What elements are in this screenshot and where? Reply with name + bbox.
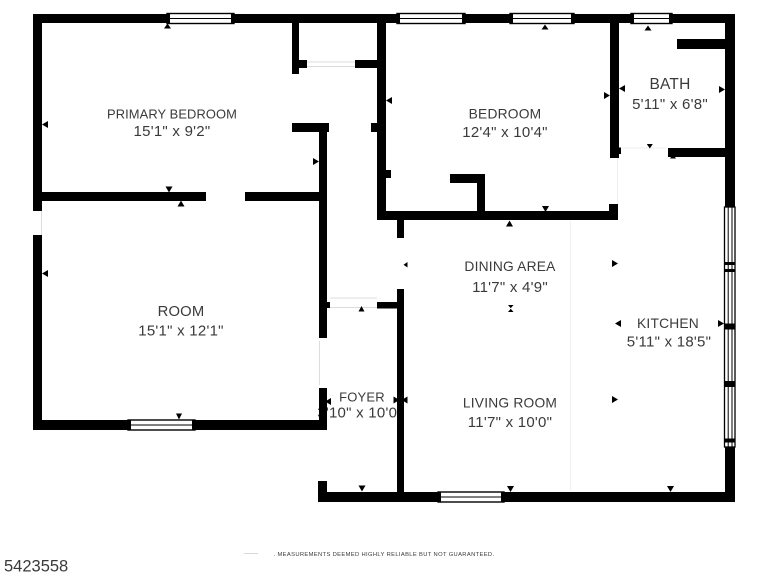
svg-text:ROOM: ROOM	[158, 304, 205, 320]
svg-text:FOYER: FOYER	[339, 390, 385, 405]
svg-text:BATH: BATH	[650, 76, 691, 93]
svg-text:LIVING ROOM: LIVING ROOM	[463, 396, 557, 411]
svg-text:5'11" x 6'8": 5'11" x 6'8"	[632, 96, 708, 113]
svg-text:. MEASUREMENTS DEEMED HIGHLY R: . MEASUREMENTS DEEMED HIGHLY RELIABLE BU…	[274, 552, 495, 558]
svg-text:11'7" x 10'0": 11'7" x 10'0"	[468, 414, 552, 431]
svg-text:BEDROOM: BEDROOM	[469, 107, 542, 122]
svg-text:5'11" x 18'5": 5'11" x 18'5"	[627, 333, 711, 350]
svg-text:15'1" x 12'1": 15'1" x 12'1"	[138, 323, 224, 340]
svg-text:15'1" x 9'2": 15'1" x 9'2"	[134, 123, 211, 140]
svg-text:PRIMARY BEDROOM: PRIMARY BEDROOM	[107, 107, 237, 122]
svg-text:3'10" x 10'0": 3'10" x 10'0"	[317, 405, 403, 422]
svg-text:KITCHEN: KITCHEN	[637, 316, 699, 331]
svg-text:11'7" x 4'9": 11'7" x 4'9"	[472, 279, 548, 296]
svg-text:5423558: 5423558	[4, 558, 68, 576]
svg-text:DINING AREA: DINING AREA	[464, 259, 556, 274]
svg-text:12'4" x 10'4": 12'4" x 10'4"	[462, 124, 548, 141]
